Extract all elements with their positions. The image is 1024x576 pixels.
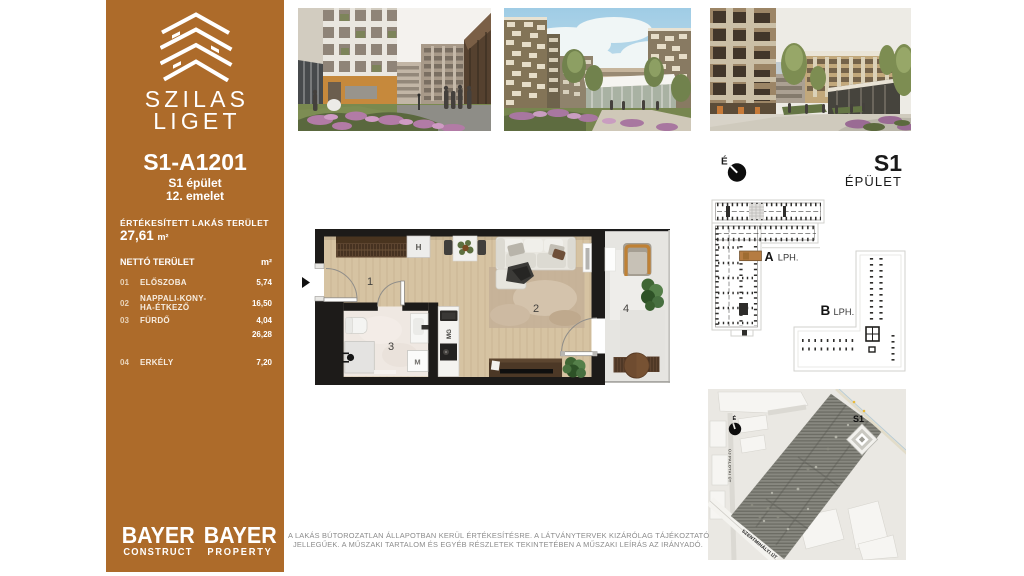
svg-text:A: A [765, 250, 774, 264]
svg-text:3: 3 [388, 341, 394, 353]
svg-text:LPH.: LPH. [834, 307, 855, 317]
svg-text:H: H [416, 243, 422, 252]
svg-text:É: É [721, 155, 728, 168]
svg-text:LPH.: LPH. [778, 253, 799, 263]
svg-text:4: 4 [623, 303, 629, 315]
svg-text:MG: MG [446, 329, 453, 339]
svg-text:B: B [821, 303, 831, 318]
svg-text:S1: S1 [853, 414, 864, 424]
svg-text:2: 2 [533, 303, 539, 315]
svg-text:ÚJ PALOTAI ÚT: ÚJ PALOTAI ÚT [728, 449, 733, 483]
svg-text:É: É [733, 414, 737, 422]
svg-text:1: 1 [367, 276, 373, 288]
svg-text:M: M [414, 358, 420, 367]
